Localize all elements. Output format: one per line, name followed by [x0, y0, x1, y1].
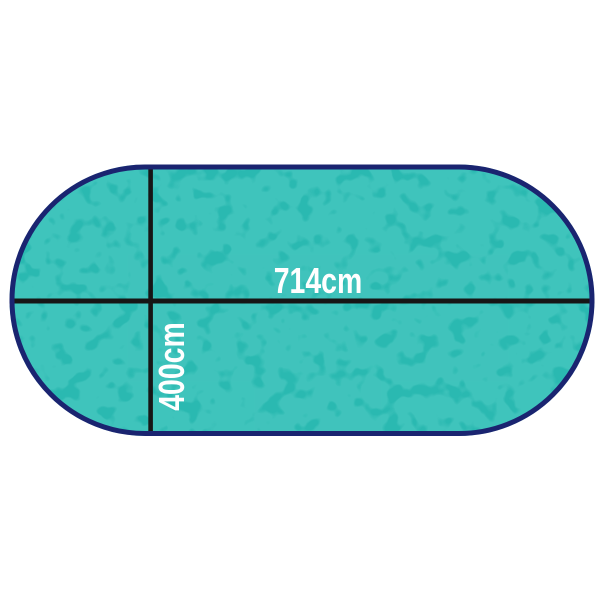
svg-text:400cm: 400cm: [152, 322, 192, 411]
svg-text:714cm: 714cm: [274, 261, 363, 301]
